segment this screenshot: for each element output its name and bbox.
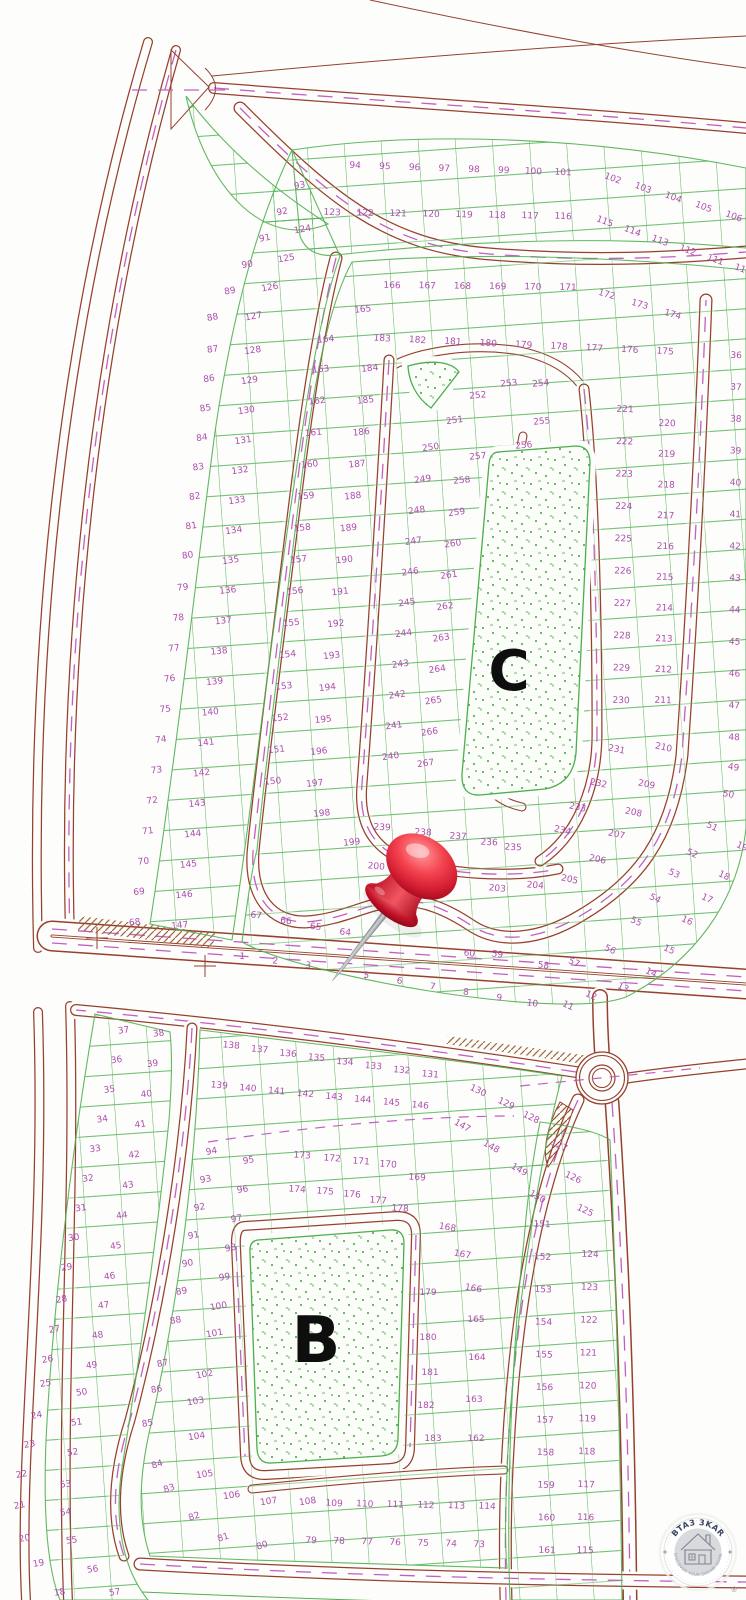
plot-number: 136 [279,1049,297,1060]
plot-number: 88 [206,312,219,324]
plot-number: 59 [491,949,504,961]
plot-number: 155 [535,1350,553,1361]
plot-number: 84 [196,433,209,445]
plot-number: 158 [537,1448,555,1459]
plot-number: 144 [184,829,202,841]
plot-number: 189 [340,523,358,535]
plot-number: 77 [168,643,180,654]
plot-number: 46 [103,1271,116,1283]
area-label-c: C [488,639,529,704]
plot-number: 224 [615,502,633,513]
plot-number: 180 [419,1333,436,1343]
plot-number: 92 [276,207,289,219]
plot-number: 135 [307,1053,325,1064]
plot-number: 116 [577,1513,595,1524]
plot-number: 136 [219,585,237,597]
plot-number: 33 [89,1144,102,1155]
plot-number: 115 [576,1546,594,1557]
plot-number: 258 [453,475,471,486]
plot-number: 145 [382,1097,400,1108]
plot-number: 94 [349,161,361,172]
plot-number: 91 [258,233,271,245]
plot-number: 58 [537,960,550,972]
plot-number: 117 [521,211,539,222]
plot-number: 237 [449,832,467,843]
plot-number: 68 [129,917,142,928]
plot-number: 160 [538,1513,556,1524]
plot-number: 142 [193,768,211,780]
plot-number: 75 [417,1538,429,1549]
plot-number: 22 [15,1469,28,1481]
plot-number: 178 [550,342,568,353]
plot-number: 181 [421,1368,438,1378]
plot-number: 65 [309,922,321,933]
plot-number: 143 [325,1092,343,1103]
plot-number: 186 [352,427,370,439]
plot-number: 164 [468,1353,485,1363]
plot-number: 160 [301,459,319,471]
plot-number: 98 [468,165,480,176]
registered-mark: ® [731,1586,738,1594]
plot-number: 90 [181,1258,194,1270]
plot-number: 45 [729,637,741,648]
plot-number: 183 [424,1434,441,1444]
plot-number: 118 [578,1447,596,1458]
plot-number: 76 [163,674,176,685]
plot-number: 150 [264,776,282,788]
plot-number: 71 [142,826,154,837]
plot-number: 39 [730,446,742,457]
plot-number: 25 [39,1378,52,1390]
plot-number: 255 [533,416,551,427]
plot-number: 120 [422,209,440,220]
plot-number: 117 [577,1480,595,1491]
plot-number: 73 [473,1540,485,1551]
plot-number: 69 [133,887,146,898]
plot-number: 35 [103,1085,116,1096]
plot-number: 51 [70,1417,83,1428]
plot-number: 66 [280,916,293,927]
plot-number: 89 [175,1286,188,1298]
plot-number: 239 [373,823,391,834]
plot-number: 193 [323,650,341,662]
plot-number: 145 [179,859,197,871]
plot-number: 192 [327,619,345,631]
plot-number: 204 [526,880,544,891]
plot-number: 161 [538,1546,556,1557]
plot-number: 99 [218,1272,231,1284]
plot-number: 79 [177,582,190,593]
plot-number: 218 [657,480,675,491]
plot-number: 235 [504,843,522,854]
plot-number: 72 [146,796,158,807]
plot-number: 86 [203,374,216,386]
plot-number: 64 [339,927,352,938]
plot-number: 159 [537,1481,555,1492]
plot-number: 109 [325,1499,343,1510]
plot-number: 227 [614,599,632,610]
plot-number: 174 [288,1184,306,1195]
plot-number: 152 [534,1252,552,1263]
plot-number: 38 [730,414,742,425]
plot-number: 49 [85,1360,98,1372]
plot-number: 253 [500,378,518,389]
plot-number: 181 [444,337,462,348]
plot-number: 42 [128,1150,141,1161]
plot-number: 52 [66,1447,79,1458]
plot-number: 82 [188,491,201,502]
plot-number: 44 [729,605,741,616]
plot-number: 99 [498,166,510,177]
plot-number: 121 [389,209,407,220]
plot-number: 142 [296,1089,314,1100]
plot-number: 70 [137,857,150,868]
plot-number: 48 [91,1330,104,1342]
plot-number: 31 [75,1203,88,1214]
plot-number: 32 [82,1173,95,1184]
plot-number: 56 [86,1564,99,1576]
plot-number: 177 [369,1195,387,1206]
plot-number: 101 [554,168,572,179]
plot-number: 178 [391,1203,409,1214]
park-c [462,446,590,795]
plot-number: 94 [205,1146,218,1158]
plot-number: 98 [224,1243,237,1255]
plot-number: 37 [117,1025,130,1036]
plot-number: 153 [534,1285,552,1296]
plot-number: 85 [141,1418,154,1430]
plot-number: 74 [445,1539,457,1550]
plot-number: 121 [580,1348,598,1359]
plot-number: 60 [463,948,476,960]
area-label-b: B [292,1304,341,1378]
plot-number: 34 [96,1114,109,1126]
plot-number: 23 [23,1439,36,1451]
plot-number: 119 [455,210,473,221]
plot-number: 180 [479,338,497,349]
plot-number: 190 [335,555,353,567]
plot-number: 73 [150,765,162,776]
plot-number: 40 [140,1089,153,1101]
plot-number: 191 [331,587,349,599]
plot-number: 143 [188,798,206,810]
plot-number: 92 [193,1202,206,1214]
plot-number: 184 [361,363,379,375]
plot-number: 137 [214,616,232,628]
plot-number: 86 [150,1384,163,1396]
plot-number: 78 [172,613,185,624]
plot-number: 197 [306,778,324,790]
plot-number: 200 [367,861,385,872]
plot-number: 146 [411,1100,429,1111]
plot-number: 88 [169,1315,182,1327]
plot-number: 96 [236,1184,249,1196]
plot-number: 225 [615,534,633,545]
plot-number: 55 [65,1535,78,1546]
plot-number: 85 [199,403,212,414]
plot-number: 188 [344,491,362,503]
plot-number: 93 [199,1174,212,1186]
plot-number: 157 [290,554,308,566]
plot-number: 163 [312,364,330,376]
plot-number: 45 [109,1241,122,1252]
plot-number: 169 [408,1172,426,1183]
plot-number: 257 [469,451,487,462]
plot-number: 9 [496,993,503,1004]
plot-number: 20 [18,1533,31,1545]
plot-number: 36 [110,1055,123,1067]
plot-number: 116 [554,212,572,223]
plot-number: 137 [251,1044,269,1055]
plot-number: 87 [156,1358,169,1370]
plot-number: 151 [267,744,285,756]
plot-number: 113 [448,1501,466,1512]
plot-number: 199 [343,837,361,849]
plot-number: 194 [318,682,336,694]
plot-number: 139 [210,1080,228,1091]
plot-number: 182 [409,335,427,346]
plot-number: 38 [152,1028,165,1040]
plot-number: 123 [581,1283,599,1294]
subdivision-map-page: 9495969798991001011021031041051061231221… [0,0,746,1600]
plot-number: 81 [185,521,198,532]
plot-number: 153 [275,681,293,693]
plot-number: 140 [201,707,219,719]
plot-number: 185 [356,395,374,407]
plot-number: 177 [585,343,603,354]
plot-number: 179 [419,1288,436,1298]
plot-number: 10 [526,998,539,1010]
plot-number: 1 [239,952,246,963]
plot-number: 164 [317,334,335,346]
plot-number: 203 [488,883,506,894]
plot-number: 141 [268,1086,286,1097]
plot-number: 168 [454,282,472,293]
plot-number: 162 [467,1434,484,1444]
plot-number: 161 [304,428,322,440]
plot-number: 187 [348,459,366,471]
plot-number: 171 [352,1156,370,1167]
plot-number: 166 [383,281,401,292]
plot-number: 42 [729,542,741,553]
plot-number: 124 [581,1250,599,1261]
plot-number: 175 [656,346,674,357]
plot-number: 49 [727,762,740,774]
plot-number: 131 [421,1069,439,1080]
plot-number: 93 [293,180,306,192]
plot-number: 157 [536,1415,554,1426]
plot-number: 163 [465,1395,482,1405]
plot-number: 138 [222,1040,240,1051]
plot-number: 89 [224,286,237,298]
plot-number: 53 [59,1479,72,1490]
plot-number: 140 [239,1083,257,1094]
plot-number: 26 [41,1354,54,1366]
plot-number: 112 [417,1500,435,1511]
plot-number: 76 [389,1538,401,1549]
plot-number: 252 [469,390,487,401]
plot-number: 43 [729,574,741,585]
plot-number: 50 [722,789,735,801]
plot-number: 151 [533,1220,551,1231]
plot-number: 83 [192,462,205,473]
plot-number: 74 [155,735,168,746]
plot-number: 19 [32,1558,45,1570]
plot-number: 170 [524,282,542,293]
plot-number: 119 [579,1414,597,1425]
plot-number: 57 [108,1587,121,1598]
plot-number: 120 [579,1381,597,1392]
subdivision-plan-svg: 9495969798991001011021031041051061231221… [0,0,746,1600]
plot-number: 236 [480,838,498,849]
plot-number: 146 [175,890,193,902]
plot-number: 138 [210,646,228,658]
plot-number: 219 [658,449,676,460]
plot-number: 41 [729,510,741,521]
plot-number: 90 [241,259,254,271]
plot-number: 134 [336,1057,354,1068]
plot-number: 226 [614,566,632,577]
plot-number: 97 [438,164,450,175]
plot-number: 179 [515,340,533,351]
plot-number: 183 [373,333,391,344]
plot-number: 144 [354,1095,372,1106]
plot-number: 162 [308,396,326,408]
plot-number: 27 [48,1324,61,1336]
plot-number: 80 [181,550,194,562]
plot-number: 221 [616,405,634,416]
plot-number: 228 [613,631,631,642]
plot-number: 122 [356,208,374,219]
plot-number: 122 [580,1315,598,1326]
plot-number: 46 [728,669,740,680]
plot-number: 170 [379,1159,397,1170]
plot-number: 211 [654,696,672,707]
plot-number: 91 [187,1230,200,1242]
plot-number: 222 [616,437,634,448]
plot-number: 75 [159,704,171,715]
plot-number: 156 [286,586,304,598]
plot-number: 47 [97,1300,110,1311]
plot-number: 165 [467,1315,484,1325]
plot-number: 67 [250,910,262,921]
plot-number: 44 [116,1210,129,1222]
plot-number: 171 [559,283,577,294]
plot-number: 213 [655,634,673,645]
plot-number: 154 [535,1318,553,1329]
plot-number: 118 [488,210,506,221]
plot-number: 28 [55,1294,68,1306]
plot-number: 198 [313,808,331,820]
plot-number: 195 [314,714,332,726]
plot-number: 212 [655,665,673,676]
plot-number: 156 [536,1383,554,1394]
plot-number: 169 [489,282,507,293]
plot-number: 139 [206,676,224,688]
plot-number: 216 [657,542,675,553]
plot-number: 215 [656,573,674,584]
plot-number: 37 [730,383,742,394]
plot-number: 217 [657,511,675,522]
plot-number: 256 [515,440,533,451]
plot-number: 133 [364,1061,382,1072]
plot-number: 229 [613,663,631,674]
plot-number: 48 [728,733,740,744]
plot-number: 40 [729,478,741,489]
plot-number: 254 [532,378,550,389]
plot-number: 155 [282,618,300,630]
plot-number: 223 [615,469,633,480]
plot-number: 176 [621,345,639,356]
plot-number: 214 [656,603,674,614]
plot-number: 96 [409,163,421,174]
plot-number: 29 [60,1262,73,1274]
plot-number: 158 [293,523,311,535]
plot-number: 39 [146,1059,159,1071]
plot-number: 36 [730,351,742,362]
plot-number: 47 [728,701,740,712]
plot-number: 41 [134,1119,147,1130]
plot-number: 95 [242,1155,255,1167]
plot-number: 78 [333,1536,345,1547]
plot-number: 172 [323,1153,341,1164]
plot-number: 152 [271,713,289,725]
plot-number: 220 [658,419,676,430]
plot-number: 77 [361,1537,373,1548]
plot-number: 230 [612,696,630,707]
plot-number: 176 [343,1189,361,1200]
plot-number: 54 [59,1507,72,1519]
plot-number: 110 [356,1499,374,1510]
plot-number: 43 [122,1180,135,1191]
plot-number: 95 [379,162,391,173]
plot-number: 159 [297,491,315,503]
plot-number: 182 [417,1401,434,1411]
plot-number: 97 [230,1214,243,1226]
plot-number: 3 [305,961,312,972]
plot-number: 111 [386,1500,404,1511]
plot-number: 2 [272,956,279,967]
plot-number: 30 [67,1233,80,1245]
plot-number: 154 [278,649,296,661]
plot-number: 21 [13,1500,26,1512]
plot-number: 79 [305,1536,317,1547]
plot-number: 123 [323,208,341,219]
plot-number: 24 [30,1410,43,1422]
plot-number: 50 [75,1387,88,1399]
plot-number: 114 [478,1502,496,1513]
plot-number: 18 [53,1587,66,1599]
plot-number: 173 [293,1150,311,1161]
plot-number: 167 [419,281,437,292]
plot-number: 87 [206,344,219,355]
plot-number: 132 [393,1065,411,1076]
plot-number: 147 [171,920,189,932]
plot-number: 196 [310,746,328,758]
plot-number: 141 [197,737,215,749]
plot-number: 165 [354,304,372,316]
plot-number: 175 [316,1186,334,1197]
plot-number: 100 [525,167,543,178]
